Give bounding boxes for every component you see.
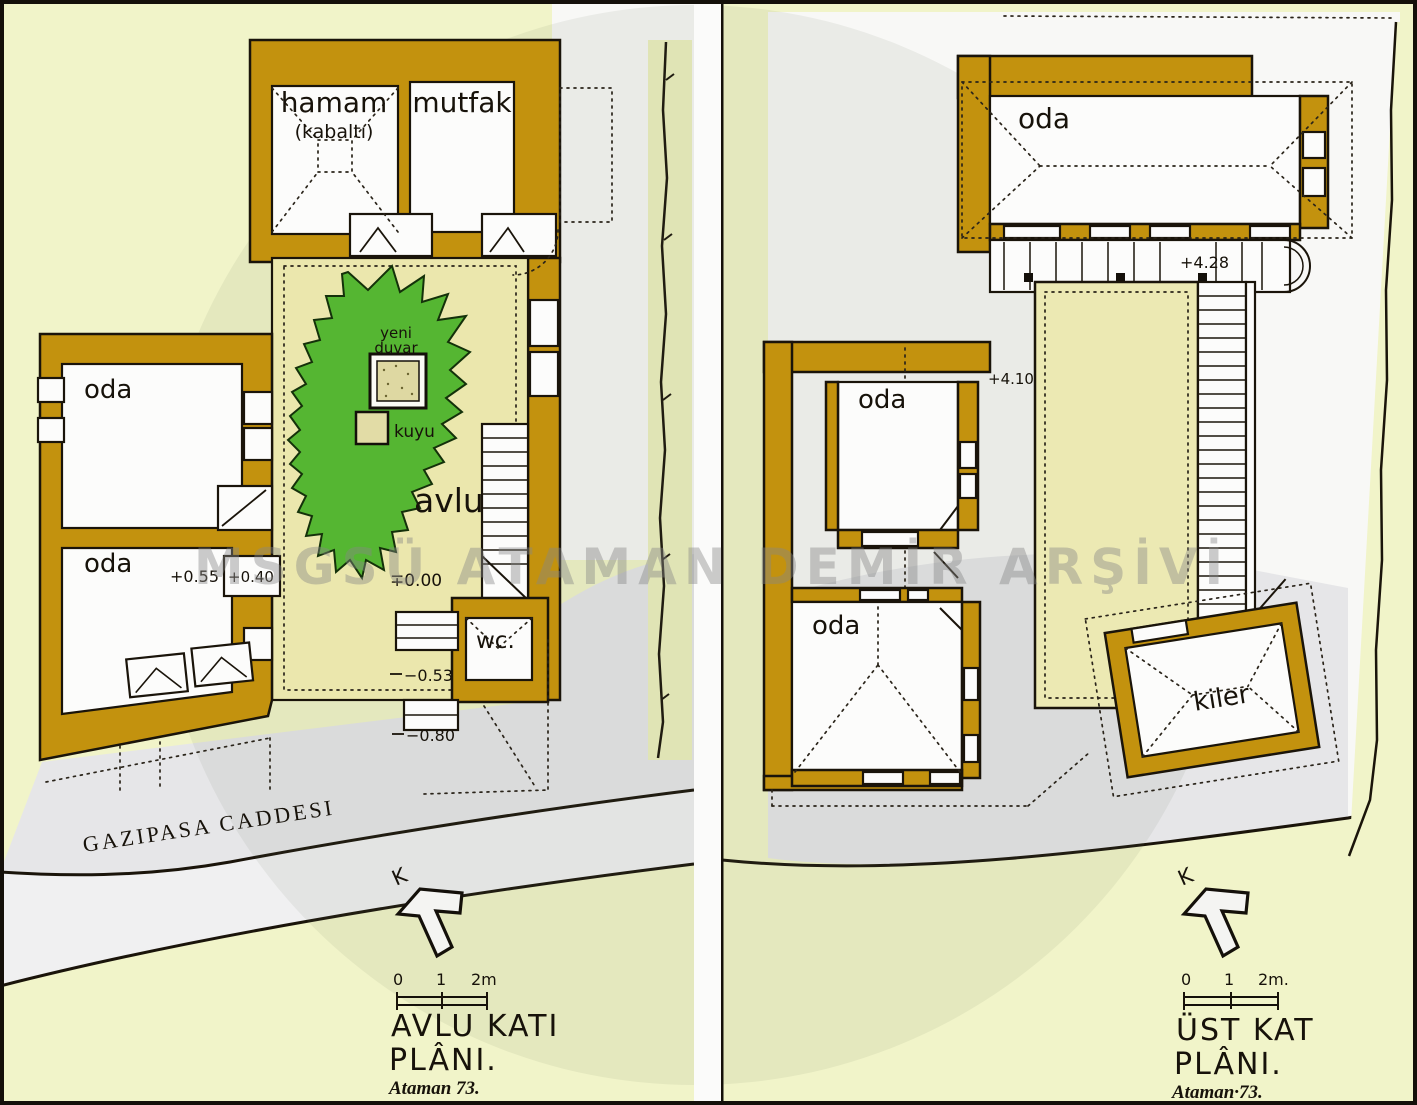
yeni-label-2: duvar: [374, 339, 418, 357]
left-east-window-1: [530, 300, 558, 346]
left-title-line1: AVLU KATI: [391, 1009, 559, 1044]
garden-structure-floor: [377, 361, 419, 401]
left-scale-2: 2m: [471, 970, 497, 989]
hamam-note-label: (kabaltı): [295, 121, 374, 143]
right-scale-2: 2m.: [1258, 970, 1289, 989]
right-mid-wall: [764, 342, 990, 372]
right-title-line1: ÜST KAT: [1176, 1012, 1315, 1048]
oda-lower-right-label: oda: [812, 611, 860, 641]
right-title-line2: PLÂNI.: [1174, 1046, 1283, 1082]
scanned-drawing-sheet: hamam (kabaltı) mutfak oda oda +0.55 +0.…: [0, 0, 1417, 1105]
right-east-window-1: [1303, 132, 1325, 158]
right-scale-1: 1: [1224, 970, 1234, 989]
elev-080-label: −0.80: [406, 726, 455, 745]
well-kuyu: [356, 412, 388, 444]
right-top-west-wall: [958, 56, 990, 252]
wing-window-1: [38, 378, 64, 402]
oda-upper-label: oda: [84, 375, 132, 405]
oda-top-label: oda: [1018, 102, 1070, 135]
right-scale-0: 0: [1181, 970, 1191, 989]
avlu-label: avlu: [414, 481, 484, 520]
left-title-line2: PLÂNI.: [389, 1042, 498, 1078]
right-top-wall: [958, 56, 1252, 98]
left-scale-1: 1: [436, 970, 446, 989]
right-staircase: [1198, 282, 1255, 652]
archive-watermark-text: MSGSÜ ATAMAN DEMİR ARŞİVİ: [194, 537, 1230, 596]
oda-lower-label: oda: [84, 549, 132, 579]
wing-niche-2: [244, 428, 272, 460]
wing-window-2: [38, 418, 64, 442]
kuyu-label: kuyu: [394, 422, 435, 442]
right-signature: Ataman·73.: [1171, 1082, 1263, 1103]
elev-428-label: +4.28: [1180, 253, 1229, 272]
left-east-window-2: [530, 352, 558, 396]
left-entry-cell-2: [482, 214, 556, 256]
elev-053-label: −0.53: [404, 666, 453, 685]
right-top-east-wall: [1300, 96, 1328, 228]
left-scale-0: 0: [393, 970, 403, 989]
mutfak-label: mutfak: [412, 86, 512, 119]
wing-niche-1: [244, 392, 272, 424]
plans-canvas: hamam (kabaltı) mutfak oda oda +0.55 +0.…: [0, 0, 1417, 1105]
left-signature: Ataman 73.: [388, 1078, 480, 1099]
right-east-window-2: [1303, 168, 1325, 196]
wc-label: wc.: [476, 628, 515, 654]
elev-410-label: +4.10: [988, 370, 1034, 388]
oda-middle-label: oda: [858, 385, 906, 415]
hamam-label: hamam: [281, 86, 388, 119]
